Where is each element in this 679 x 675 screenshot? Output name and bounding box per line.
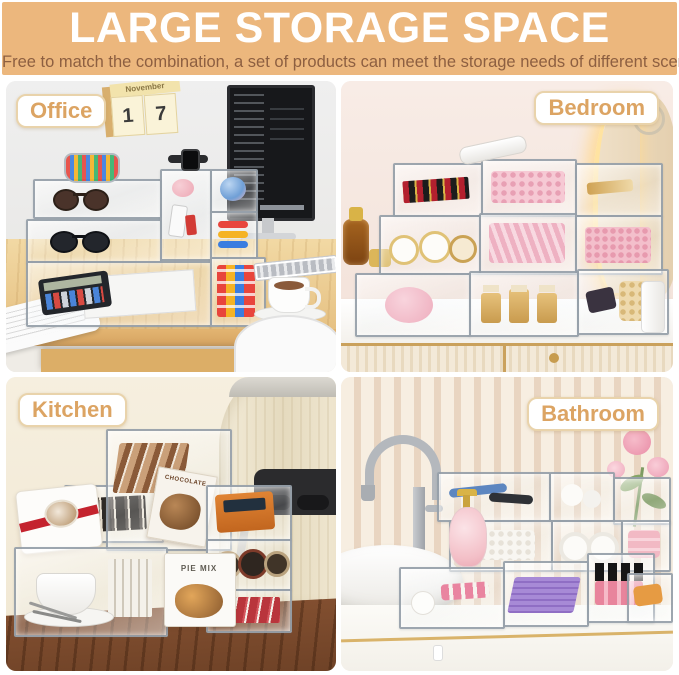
bedroom-drawer-lipsticks (393, 163, 483, 217)
pink-powder-puff (385, 287, 433, 323)
under-desk-drawer (41, 349, 241, 372)
coffee-pod (264, 551, 290, 577)
sugar-stick-packets (108, 559, 152, 617)
bathroom-drawer-cotton-balls (549, 472, 615, 522)
cable-blue (218, 241, 248, 248)
scene-bathroom: Bathroom (341, 377, 673, 671)
cable-red (218, 221, 248, 228)
soap-dispenser (447, 489, 487, 565)
package-label-band (223, 498, 266, 513)
sunglasses-lens (82, 231, 110, 253)
scene-label-kitchen: Kitchen (18, 393, 127, 427)
monitor-stand (262, 218, 274, 234)
rose-pink (647, 457, 669, 477)
cream-jar (449, 235, 477, 263)
scene-label-office: Office (16, 94, 106, 128)
calendar-day-right-text: 7 (155, 103, 168, 126)
bedroom-drawer-cream-jars (379, 215, 481, 275)
polish-caps (483, 285, 555, 292)
sunglasses-bridge (73, 193, 87, 196)
purple-soap-stack (507, 577, 581, 613)
desk-calendar: November 1 7 (110, 81, 180, 139)
cream-jar (419, 231, 451, 263)
perfume-cap-gold (349, 207, 363, 221)
dispenser-bottle (449, 507, 487, 567)
pink-plush (172, 179, 194, 197)
amber-polish-bottle (481, 293, 501, 323)
pie-mix-label: PIE MIX (165, 564, 233, 573)
office-drawer-calculator (26, 261, 212, 327)
drawer-pull-cord (433, 645, 443, 661)
coffee-surface (274, 281, 304, 290)
pie-mix-text: PIE MIX (181, 564, 217, 573)
pie-mix-box: PIE MIX (164, 553, 236, 627)
watch-face (181, 149, 200, 171)
vanity-divider (503, 343, 506, 372)
sunglasses-brown (53, 189, 133, 209)
dark-makeup-item (585, 286, 617, 313)
pearl-beads (585, 227, 651, 263)
pie-photo-blob (175, 584, 223, 618)
calendar-month-text: November (125, 81, 165, 94)
monitor-code-lines (270, 108, 304, 148)
kitchen-drawer-coffee-package (206, 485, 292, 541)
bedroom-drawer-pearls (575, 215, 663, 275)
faucet-spout (361, 485, 375, 501)
office-drawer-chargers (160, 169, 212, 261)
raffaello-box (15, 483, 103, 555)
sunglasses-bridge (72, 235, 86, 238)
scene-label-bathroom-text: Bathroom (541, 401, 645, 426)
scene-kitchen: CHOCOLATE PIE MIX Kitchen (6, 377, 336, 671)
apple-watch (168, 147, 208, 169)
black-razor (489, 492, 534, 504)
kitchen-drawer-teacup (14, 547, 168, 637)
scene-label-kitchen-text: Kitchen (32, 397, 113, 422)
pink-brushes (489, 223, 565, 263)
chocolate-box-text: CHOCOLATE (164, 475, 206, 488)
scene-label-bedroom: Bedroom (534, 91, 659, 125)
scene-label-bedroom-text: Bedroom (548, 95, 645, 120)
scene-office: November 1 7 (6, 81, 336, 372)
monitor-highlight-bar (260, 205, 304, 210)
white-lotion-bottle (641, 281, 665, 333)
bedroom-drawer-white-cosmetic (575, 163, 663, 217)
bedroom-drawer-powder-puff (355, 273, 471, 337)
scene-label-office-text: Office (30, 98, 92, 123)
machine-chrome-top (229, 377, 336, 397)
vanity-cabinet (341, 343, 673, 372)
bathroom-drawer-purple-soap-sheets (503, 561, 589, 627)
scene-label-bathroom: Bathroom (527, 397, 659, 431)
cotton-balls (561, 484, 583, 506)
paperclip-cup (64, 153, 120, 183)
orange-soap-bar (633, 583, 664, 607)
cable-yellow (218, 231, 248, 238)
pink-razor-heads (441, 581, 490, 600)
office-chair (234, 315, 336, 372)
bathroom-drawer-top-right (613, 477, 671, 525)
pink-beads (491, 171, 565, 203)
office-drawer-sunglasses-top (33, 179, 162, 219)
rose-pink (623, 429, 651, 455)
office-drawer-plush (210, 169, 258, 213)
white-cosmetic-ball (411, 591, 435, 615)
office-drawer-sunglasses-bottom (26, 219, 162, 263)
calendar-day-right: 7 (144, 93, 179, 135)
bedroom-drawer-brushes (479, 213, 577, 275)
page-subtitle: Free to match the combination, a set of … (2, 53, 677, 72)
page-title: LARGE STORAGE SPACE (2, 2, 677, 50)
vanity-knob (549, 353, 559, 363)
calendar-day-left: 1 (111, 95, 146, 137)
colored-sticker-tabs (217, 265, 255, 317)
bathroom-drawer-front-left (399, 567, 505, 629)
blue-plush-ball (220, 177, 246, 201)
coffee-cup (268, 277, 310, 313)
sunglasses-black (50, 231, 130, 251)
portafilter-handle (297, 495, 329, 510)
orange-coffee-package (215, 491, 276, 533)
lip-gloss-gold (587, 179, 634, 195)
bathroom-drawer-orange-soap (627, 573, 673, 623)
calendar-day-left-text: 1 (122, 105, 135, 128)
lipsticks-row (402, 177, 469, 204)
header-banner: LARGE STORAGE SPACE Free to match the co… (2, 2, 677, 75)
amber-polish-bottle (509, 289, 529, 323)
bedroom-drawer-nail-polish (469, 271, 579, 337)
bedroom-drawer-pink-cosmetics (481, 159, 577, 217)
perfume-bottle-amber (343, 219, 369, 265)
amber-polish-bottle (537, 293, 557, 323)
red-usb-stick (185, 215, 197, 236)
scene-bedroom: Bedroom (341, 81, 673, 372)
cream-jar (389, 235, 419, 265)
office-drawer-cables (210, 211, 258, 259)
chocolate-photo-blob (157, 491, 203, 533)
